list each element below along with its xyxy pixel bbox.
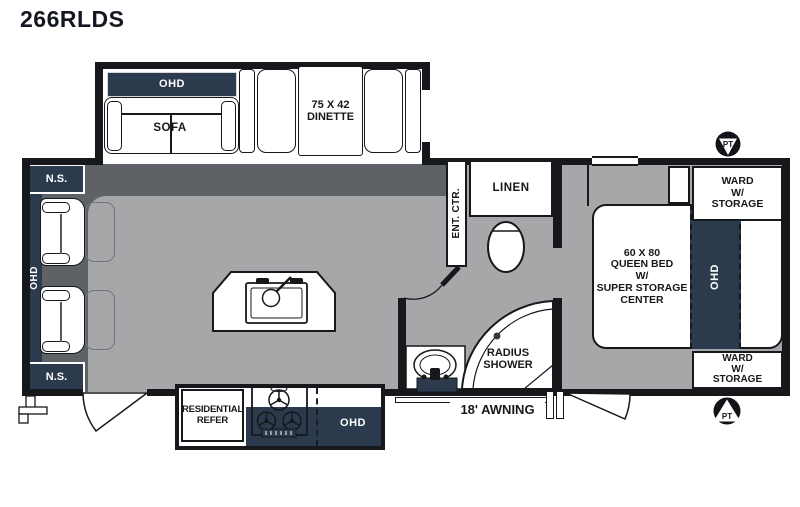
pt-bottom-label: PT bbox=[722, 412, 732, 421]
stabilizer-jack bbox=[19, 396, 47, 423]
pt-top-label: PT bbox=[723, 140, 733, 149]
toilet bbox=[488, 222, 524, 272]
bedroom-entry-door-swing bbox=[566, 393, 630, 419]
bathroom-door-swing bbox=[404, 267, 459, 299]
vanity-base bbox=[417, 378, 457, 392]
pt-marker-top: PT bbox=[716, 132, 741, 157]
cooktop-stove bbox=[252, 386, 307, 437]
shower-label: RADIUS SHOWER bbox=[468, 343, 548, 375]
kitchen-island bbox=[213, 272, 335, 331]
bathroom-vanity bbox=[406, 346, 465, 392]
pt-marker-bottom: PT bbox=[714, 398, 741, 425]
fixtures-overlay: PT PT bbox=[0, 0, 800, 507]
vanity-faucet bbox=[430, 368, 440, 380]
shower-head-icon bbox=[494, 333, 501, 340]
main-entry-door-swing bbox=[83, 393, 147, 431]
floorplan-266rlds: 266RLDS OHD SOFA 75 X 42 DINETTE OHD N.S… bbox=[0, 0, 800, 507]
